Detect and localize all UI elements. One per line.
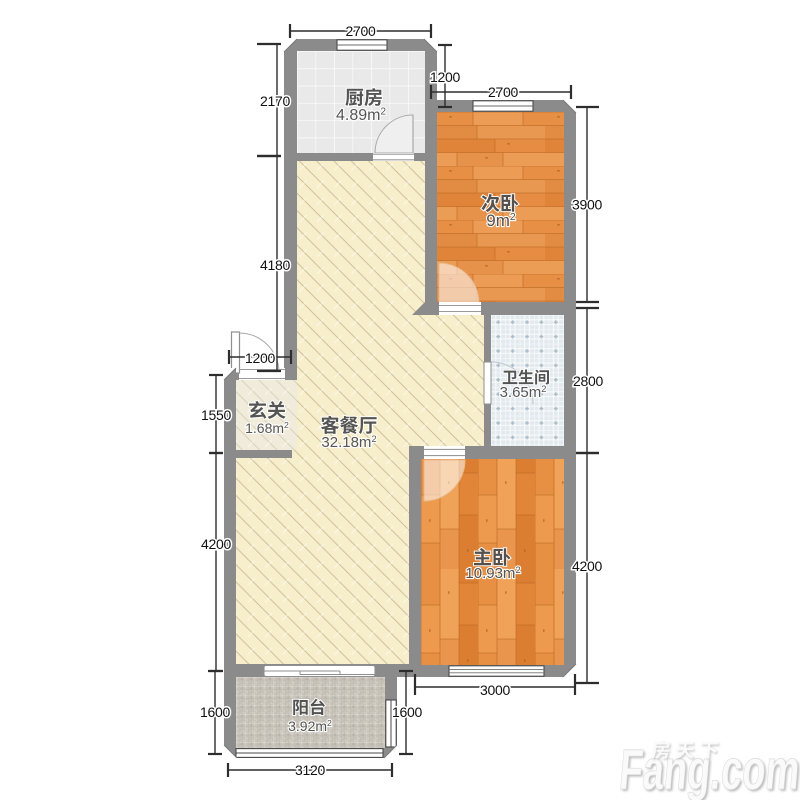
svg-text:10.93m2: 10.93m2 (465, 565, 520, 582)
svg-text:1200: 1200 (430, 69, 460, 85)
svg-text:1550: 1550 (201, 407, 231, 423)
svg-text:2700: 2700 (488, 84, 518, 100)
svg-text:2170: 2170 (260, 93, 290, 109)
svg-text:4200: 4200 (572, 558, 602, 574)
svg-text:4180: 4180 (260, 257, 290, 273)
svg-text:4.89m2: 4.89m2 (336, 106, 386, 124)
svg-text:3.65m2: 3.65m2 (500, 384, 547, 401)
svg-text:1200: 1200 (245, 350, 275, 366)
svg-text:3120: 3120 (295, 762, 325, 778)
svg-text:2700: 2700 (346, 23, 376, 39)
svg-text:1600: 1600 (392, 704, 422, 720)
svg-text:4200: 4200 (201, 536, 231, 552)
svg-text:1.68m2: 1.68m2 (245, 420, 289, 436)
svg-text:2800: 2800 (573, 373, 603, 389)
svg-text:1600: 1600 (200, 704, 230, 720)
svg-text:3000: 3000 (480, 682, 510, 698)
svg-text:32.18m2: 32.18m2 (321, 434, 376, 451)
svg-text:3.92m2: 3.92m2 (288, 718, 332, 734)
svg-text:3900: 3900 (572, 197, 602, 213)
